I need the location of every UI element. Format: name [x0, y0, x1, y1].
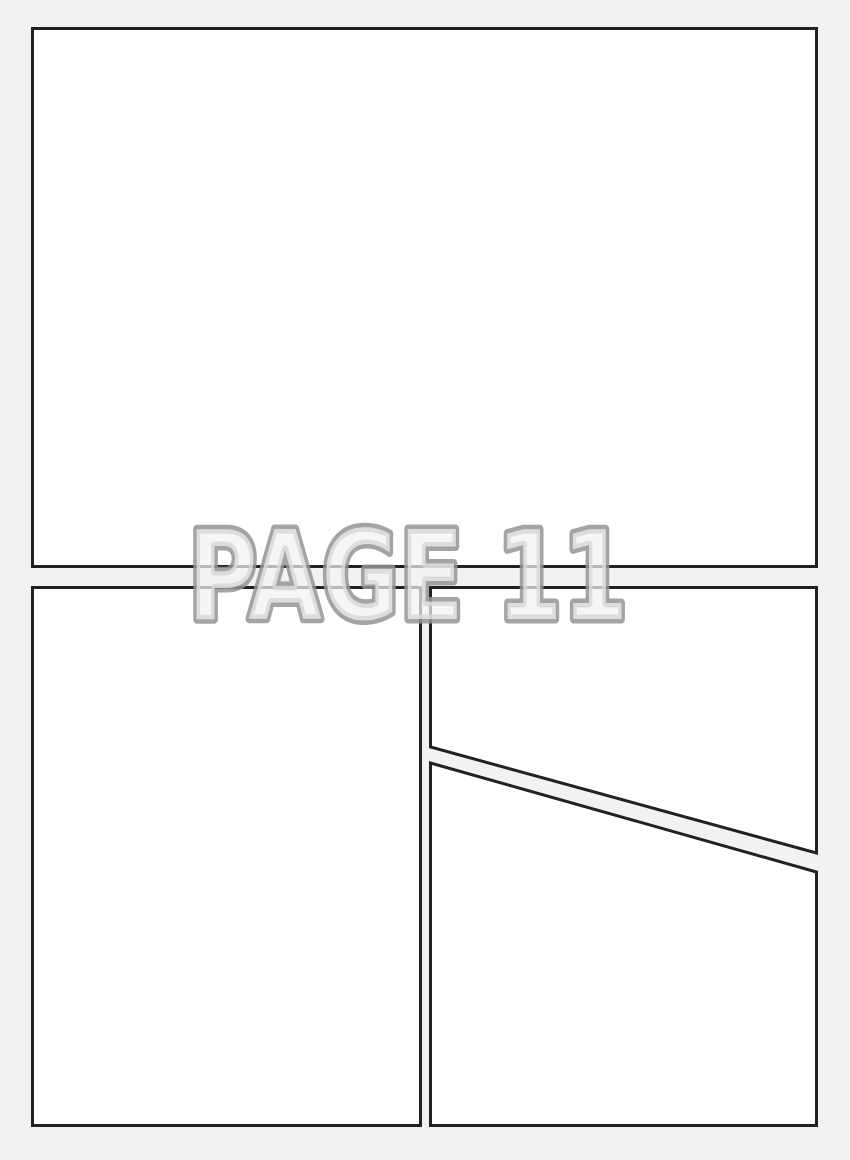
comic-panel-bottom-left: [31, 586, 422, 1127]
comic-panel-bottom-right-group: [429, 586, 818, 1127]
comic-panel-top: [31, 27, 818, 568]
comic-page-template: PAGE 11: [0, 0, 850, 1160]
